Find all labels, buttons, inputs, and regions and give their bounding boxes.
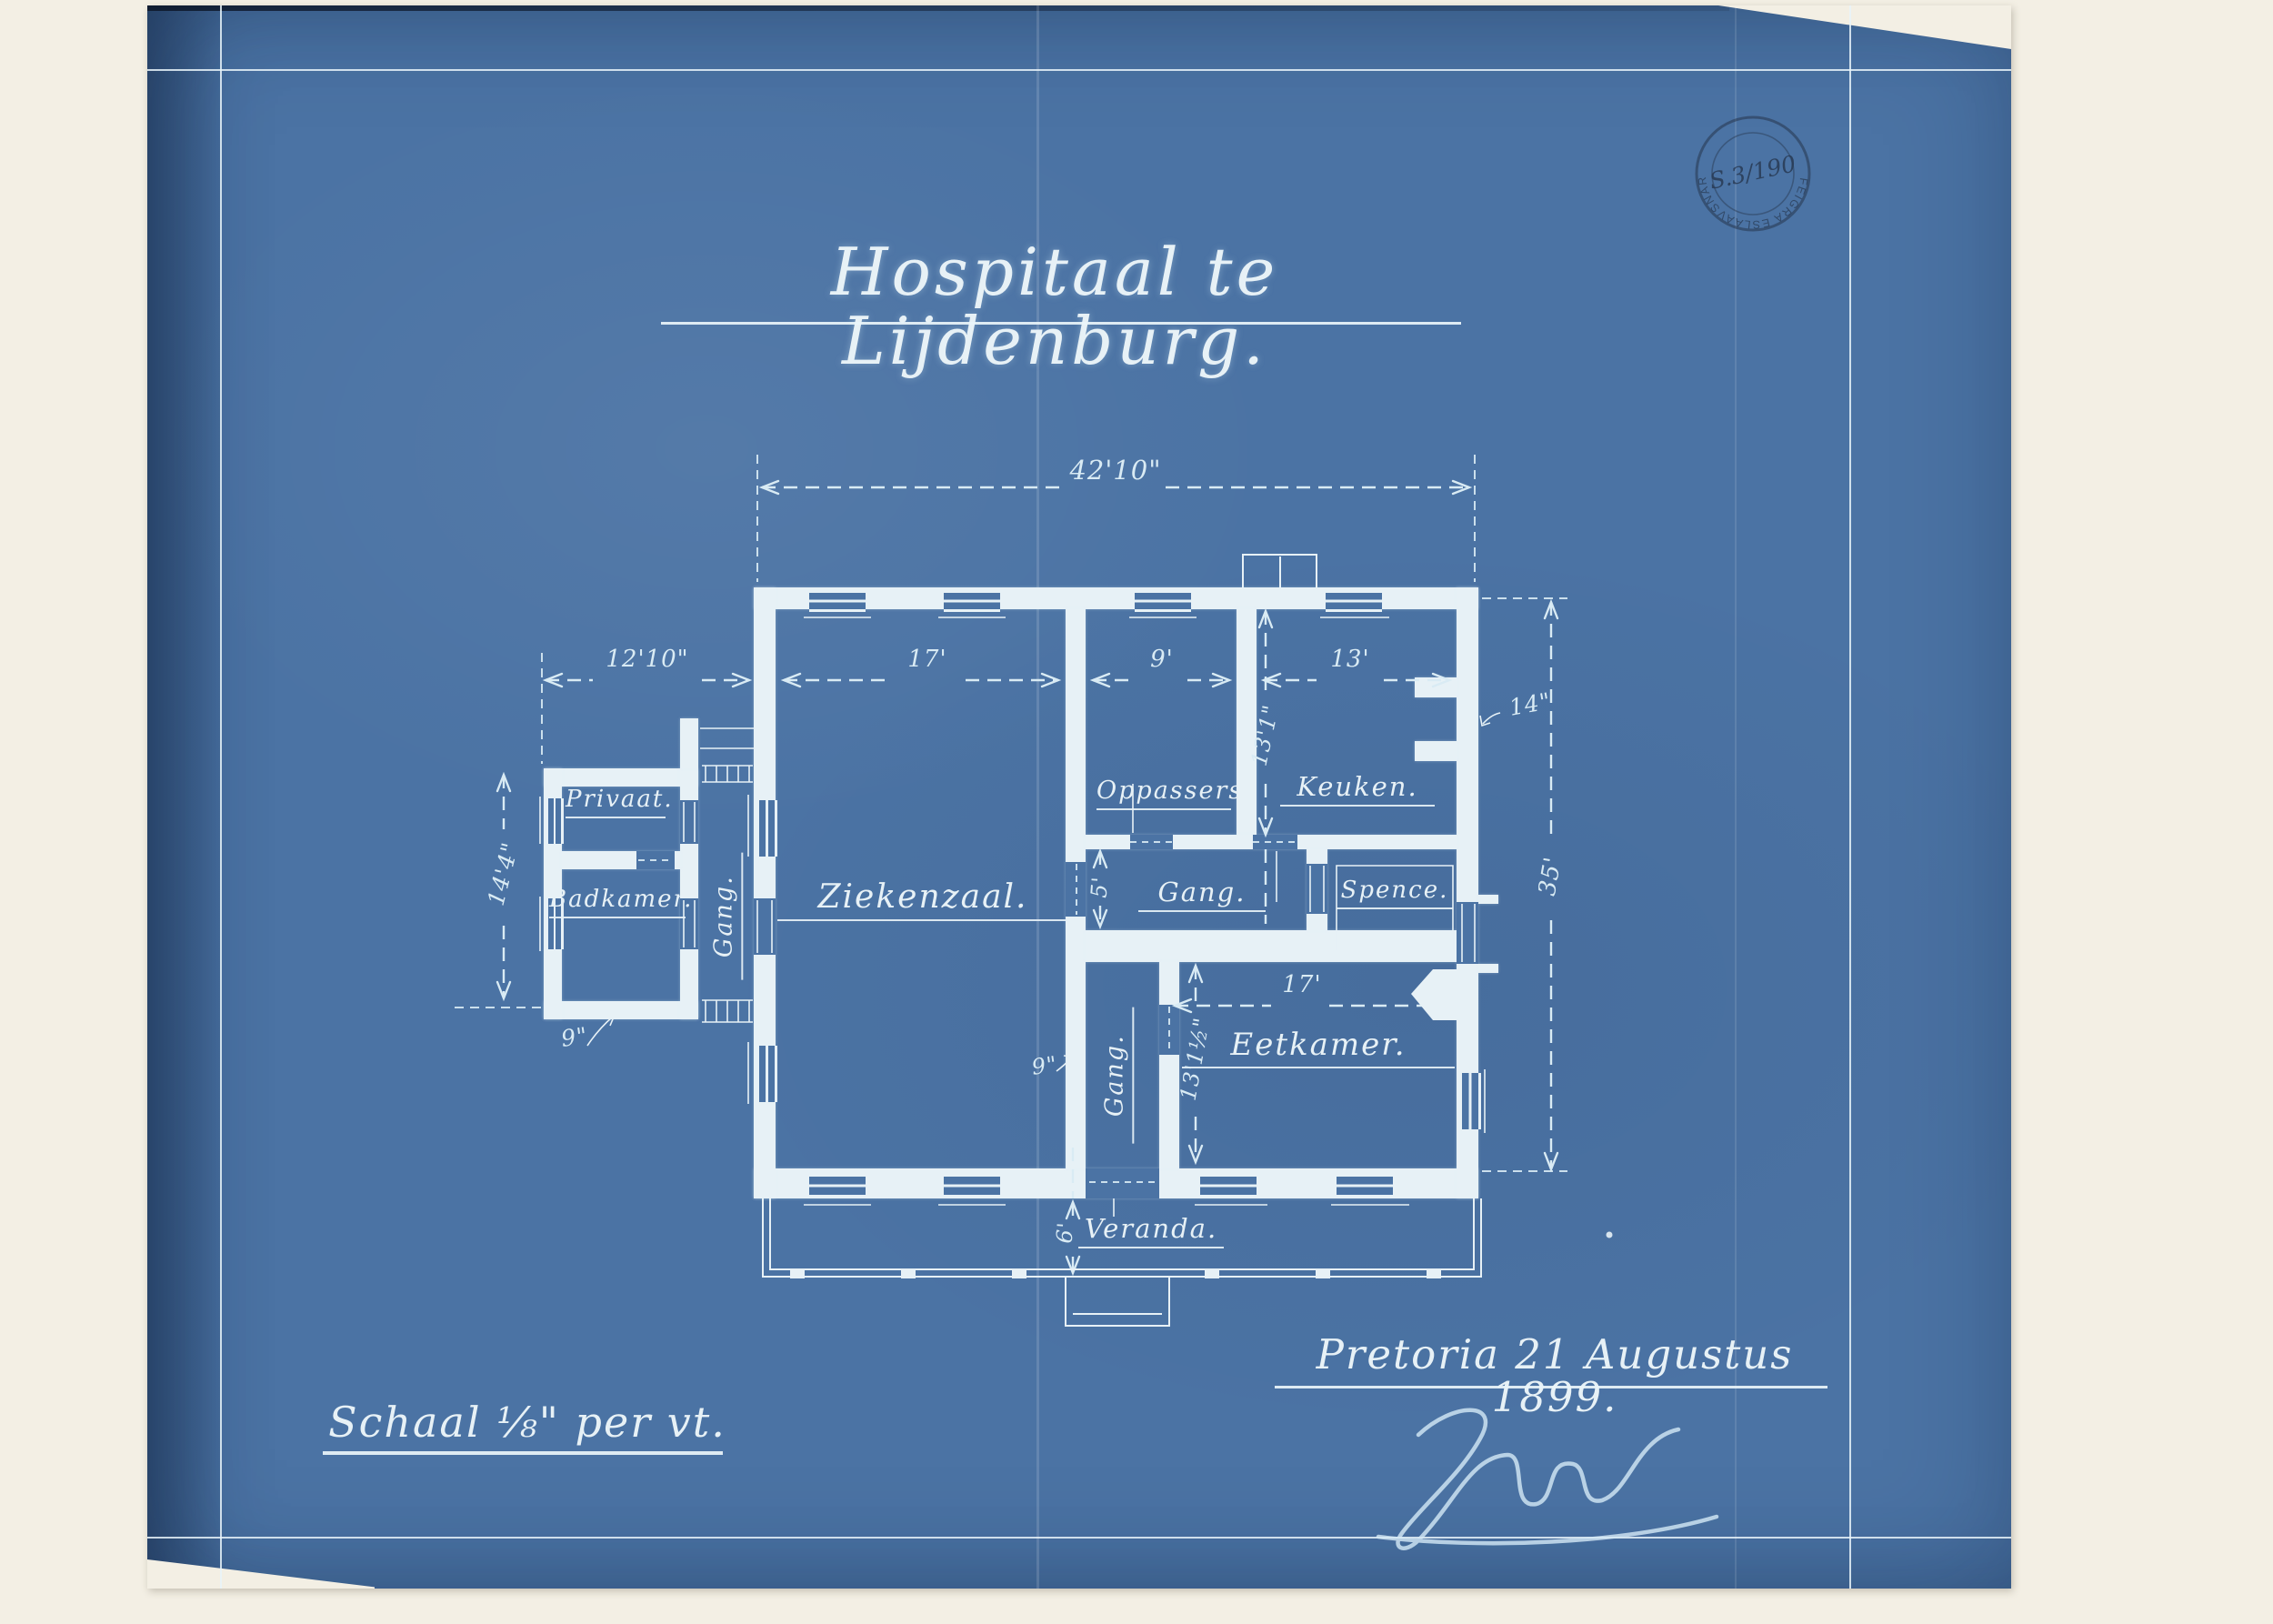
window xyxy=(756,800,777,857)
door-annex-divider xyxy=(636,851,675,869)
sheet-top-edge xyxy=(147,5,1729,11)
scale-underline xyxy=(323,1451,723,1455)
window xyxy=(1337,1174,1393,1198)
door-frame-stub xyxy=(1478,964,1498,973)
blueprint-scan: Hospitaal te Lijdenburg. xyxy=(0,0,2273,1624)
room-label-gang-mid: Gang. xyxy=(1138,878,1266,912)
window xyxy=(944,1174,1000,1198)
window xyxy=(1135,590,1191,612)
border-line-bottom xyxy=(147,1537,2011,1539)
door-veranda xyxy=(1086,1168,1159,1198)
window xyxy=(1326,590,1382,612)
door-privaat xyxy=(680,800,698,844)
annex-wall-north xyxy=(544,768,698,787)
room-label-spence: Spence. xyxy=(1337,878,1453,909)
annex-wall-south xyxy=(544,1001,698,1019)
window xyxy=(1200,1174,1257,1198)
door-west-entrance xyxy=(754,898,776,955)
screen-wall-stub xyxy=(680,718,698,768)
room-label-ziekenzaal: Ziekenzaal. xyxy=(777,880,1068,921)
door-keuken xyxy=(1253,835,1297,849)
wall-corridor-east xyxy=(1159,962,1179,1168)
scale-note: Schaal ⅛" per vt. xyxy=(327,1400,727,1444)
keuken-fireplace-cheek xyxy=(1415,741,1457,761)
archive-stamp: FEIGRA ESLAAVSNART S.3/190 xyxy=(1693,114,1813,234)
dim-oppassers-width: 9' xyxy=(1138,647,1186,672)
door-frame-stub xyxy=(1478,895,1498,904)
room-label-keuken: Keuken. xyxy=(1280,773,1435,807)
door-eetkamer xyxy=(1159,1005,1179,1055)
room-label-oppassers: Oppassers. xyxy=(1096,778,1231,810)
dim-wall-gang: 9" xyxy=(1024,1052,1065,1080)
window xyxy=(944,590,1000,612)
stamp-number: S.3/190 xyxy=(1707,150,1798,194)
room-label-veranda: Veranda. xyxy=(1078,1215,1224,1248)
window xyxy=(546,798,564,844)
window xyxy=(1459,1073,1481,1129)
dim-overall-width: 42'10" xyxy=(1062,456,1169,484)
room-label-eetkamer: Eetkamer. xyxy=(1182,1029,1455,1068)
wall-west xyxy=(754,587,776,1198)
date-underline xyxy=(1275,1386,1827,1388)
drawing-title: Hospitaal te Lijdenburg. xyxy=(636,238,1473,376)
room-label-privaat: Privaat. xyxy=(566,787,666,818)
dim-ziekenzaal-width: 17' xyxy=(887,647,967,672)
door-oppassers xyxy=(1130,835,1173,849)
border-line-right xyxy=(1849,5,1851,1589)
window xyxy=(809,1174,866,1198)
place-date: Pretoria 21 Augustus 1899. xyxy=(1282,1333,1827,1419)
dim-eetkamer-width: 17' xyxy=(1275,973,1329,997)
window xyxy=(756,1046,777,1102)
dim-gang-width: 5' xyxy=(1087,867,1113,908)
wall-gang-south xyxy=(1086,930,1457,962)
border-line-top xyxy=(147,69,2011,71)
title-underline xyxy=(661,322,1461,325)
keuken-fireplace-cheek xyxy=(1415,677,1457,697)
door-ziekenzaal-gang xyxy=(1066,862,1086,917)
room-label-gang-south: Gang. xyxy=(1102,1007,1134,1144)
dim-veranda-depth: 6' xyxy=(1053,1214,1078,1252)
dim-keuken-width: 13' xyxy=(1318,647,1382,672)
window xyxy=(809,590,866,612)
sheet-fold-shading xyxy=(147,5,220,1589)
dim-annex-width: 12'10" xyxy=(589,647,706,672)
room-label-gang-west: Gang. xyxy=(711,853,743,980)
door-spence xyxy=(1307,864,1327,914)
door-spence-exterior xyxy=(1457,902,1478,964)
room-label-badkamer: Badkamer. xyxy=(549,887,686,918)
border-line-left xyxy=(220,5,222,1589)
